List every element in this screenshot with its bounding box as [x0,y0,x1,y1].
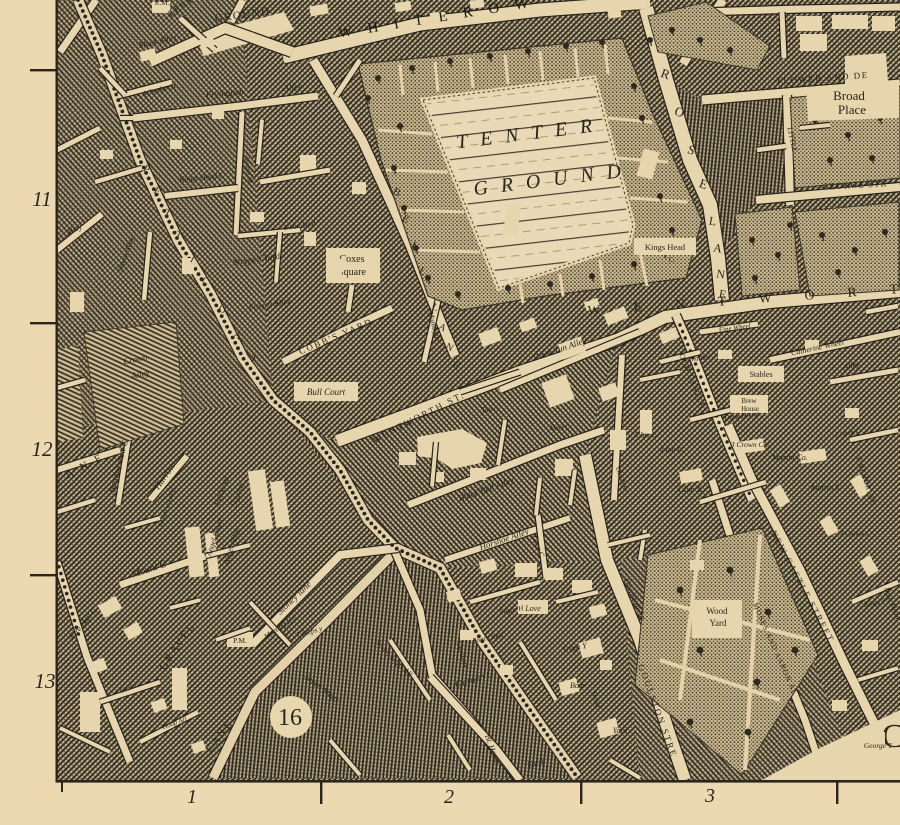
svg-text:Brew: Brew [741,397,757,405]
svg-text:Yard: Yard [709,618,727,628]
svg-text:12: 12 [32,437,54,461]
svg-text:George Y: George Y [864,741,893,750]
svg-text:Tun C: Tun C [482,406,499,414]
svg-text:Alley: Alley [282,81,302,93]
svg-text:R.M.: R.M. [155,0,170,7]
svg-text:Kings Head: Kings Head [645,242,686,252]
svg-text:3 Inn C.: 3 Inn C. [659,445,685,454]
svg-text:Love: Love [524,604,541,613]
svg-text:16: 16 [278,705,302,731]
svg-text:J. Inn C: J. Inn C [634,431,657,439]
svg-text:Hart C: Hart C [549,424,570,432]
svg-text:Broad: Broad [833,88,865,103]
svg-text:Martin Co.: Martin Co. [771,453,808,462]
svg-text:2: 2 [444,786,454,808]
svg-text:13: 13 [35,669,56,693]
svg-text:3 Crown Co.: 3 Crown Co. [730,440,769,449]
svg-text:Yard: Yard [613,726,629,735]
svg-text:Boar: Boar [570,681,587,690]
svg-text:C.: C. [669,256,676,264]
svg-text:1: 1 [187,786,197,808]
svg-text:Wood: Wood [706,606,728,616]
svg-text:Bull Court: Bull Court [307,387,346,397]
svg-text:Martin S: Martin S [810,483,839,492]
svg-text:3 Crown C: 3 Crown C [839,530,871,538]
svg-text:Place: Place [838,102,866,117]
svg-text:3: 3 [704,785,715,807]
svg-text:P.M.: P.M. [233,636,247,645]
svg-text:11: 11 [32,187,51,211]
svg-text:Stables: Stables [749,370,772,379]
svg-text:3 Tun A.: 3 Tun A. [676,485,704,494]
